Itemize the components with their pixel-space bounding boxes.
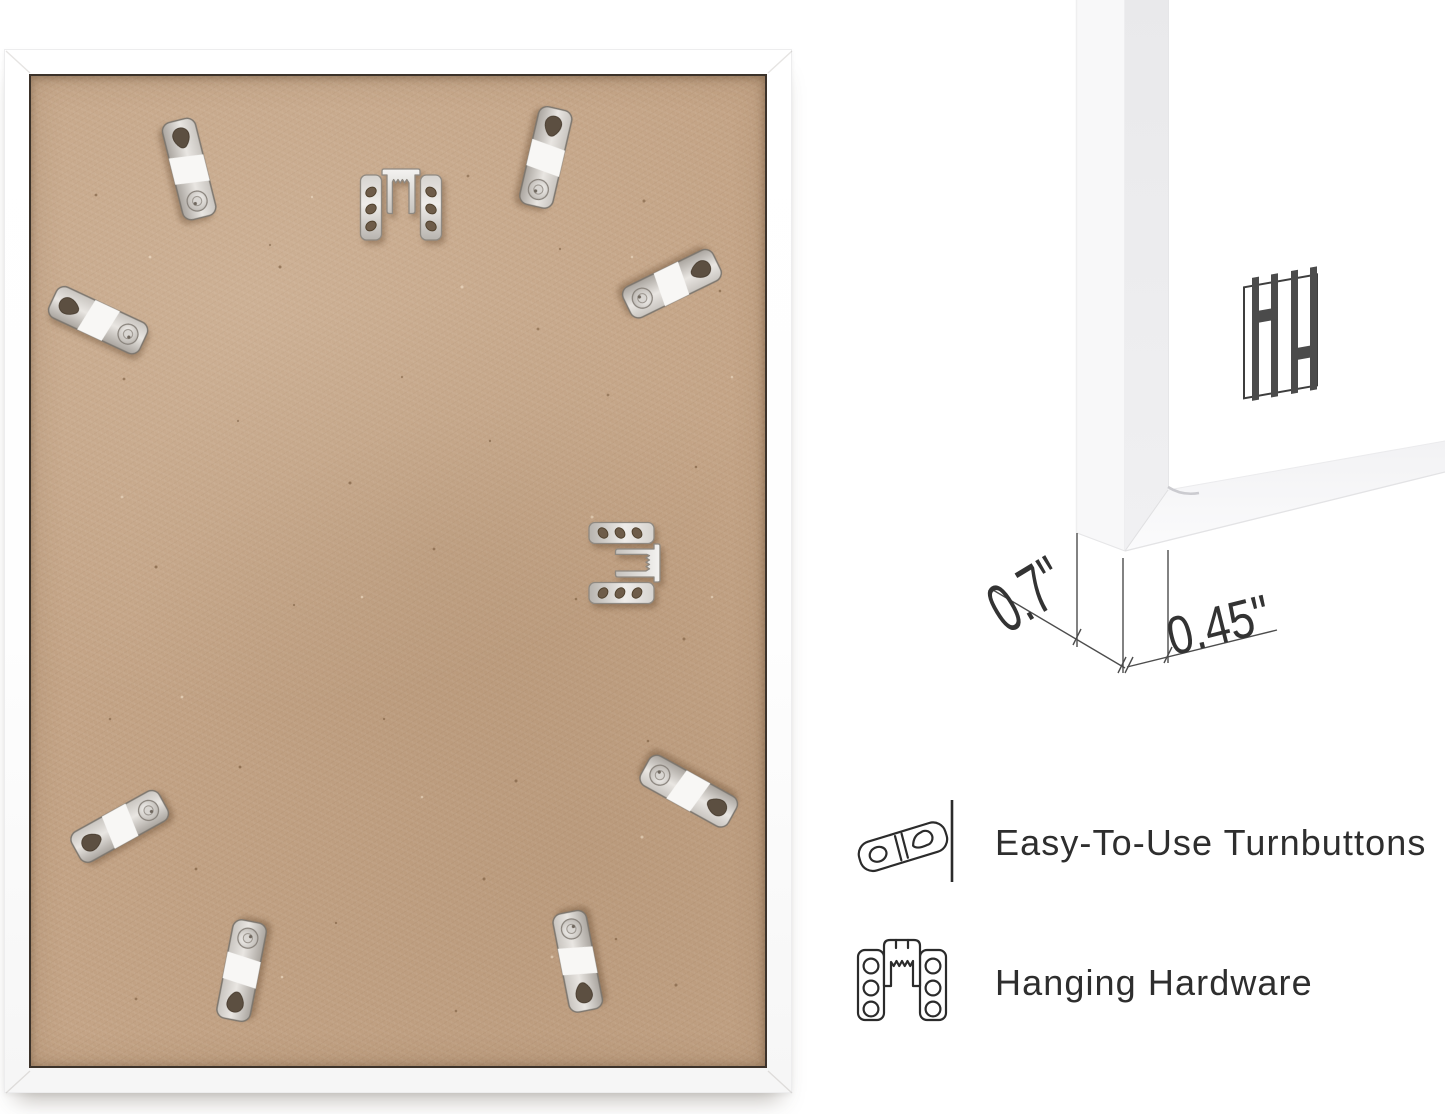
turnbutton-icon (852, 796, 956, 888)
sawtooth-hanger-top (359, 168, 443, 242)
hanging-hardware-icon (852, 934, 952, 1026)
hh-bars-logo-icon (1240, 258, 1328, 408)
dimension-annotation: 0.7" 0.45" (925, 465, 1345, 725)
sawtooth-hanger-middle (587, 521, 671, 605)
board-light-flecks (31, 76, 33, 78)
product-infographic: 0.7" 0.45" Easy-To-Use Turnbuttons Hangi… (0, 0, 1445, 1114)
feature-label-hanging-hardware: Hanging Hardware (995, 962, 1313, 1004)
feature-label-turnbuttons: Easy-To-Use Turnbuttons (995, 822, 1426, 864)
frame-back-photo (4, 49, 792, 1093)
dimension-face-label: 0.45" (1161, 584, 1276, 667)
